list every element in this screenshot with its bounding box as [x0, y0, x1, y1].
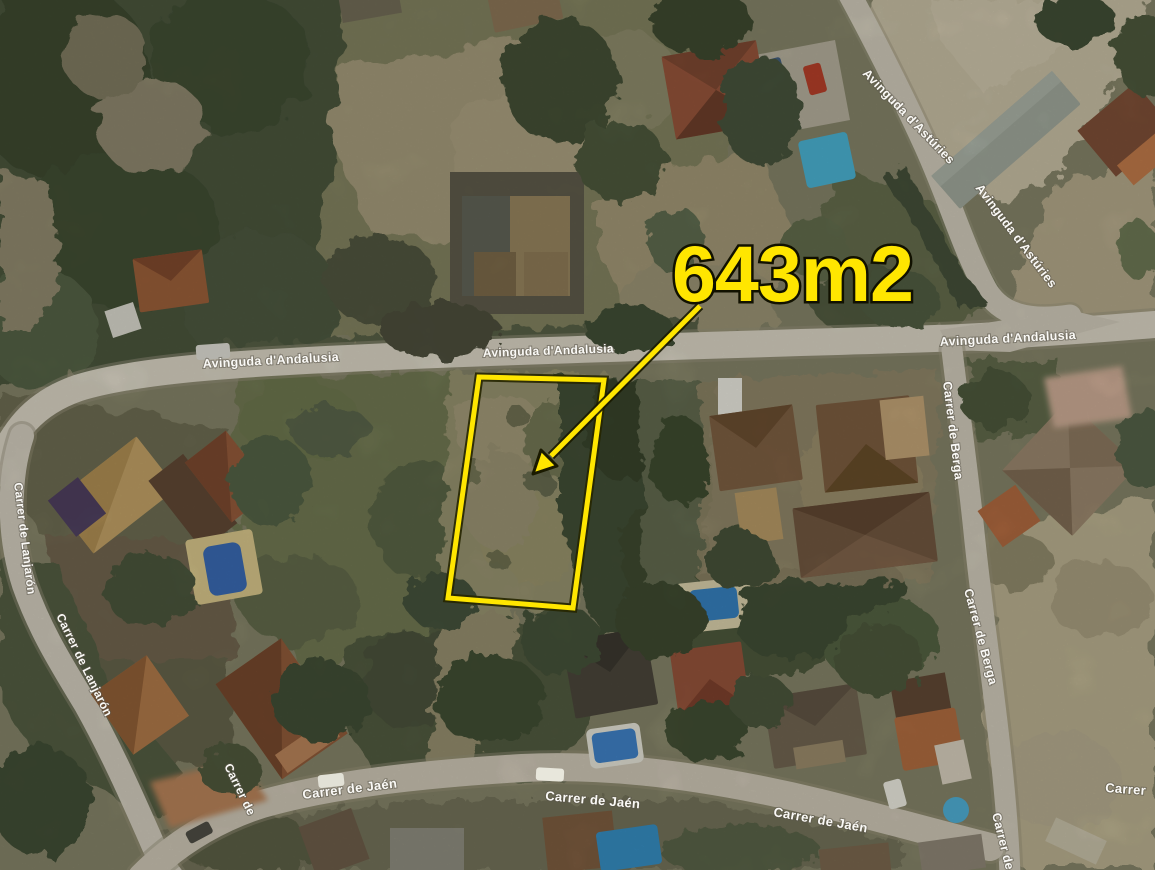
svg-text:643m2: 643m2	[672, 229, 913, 318]
